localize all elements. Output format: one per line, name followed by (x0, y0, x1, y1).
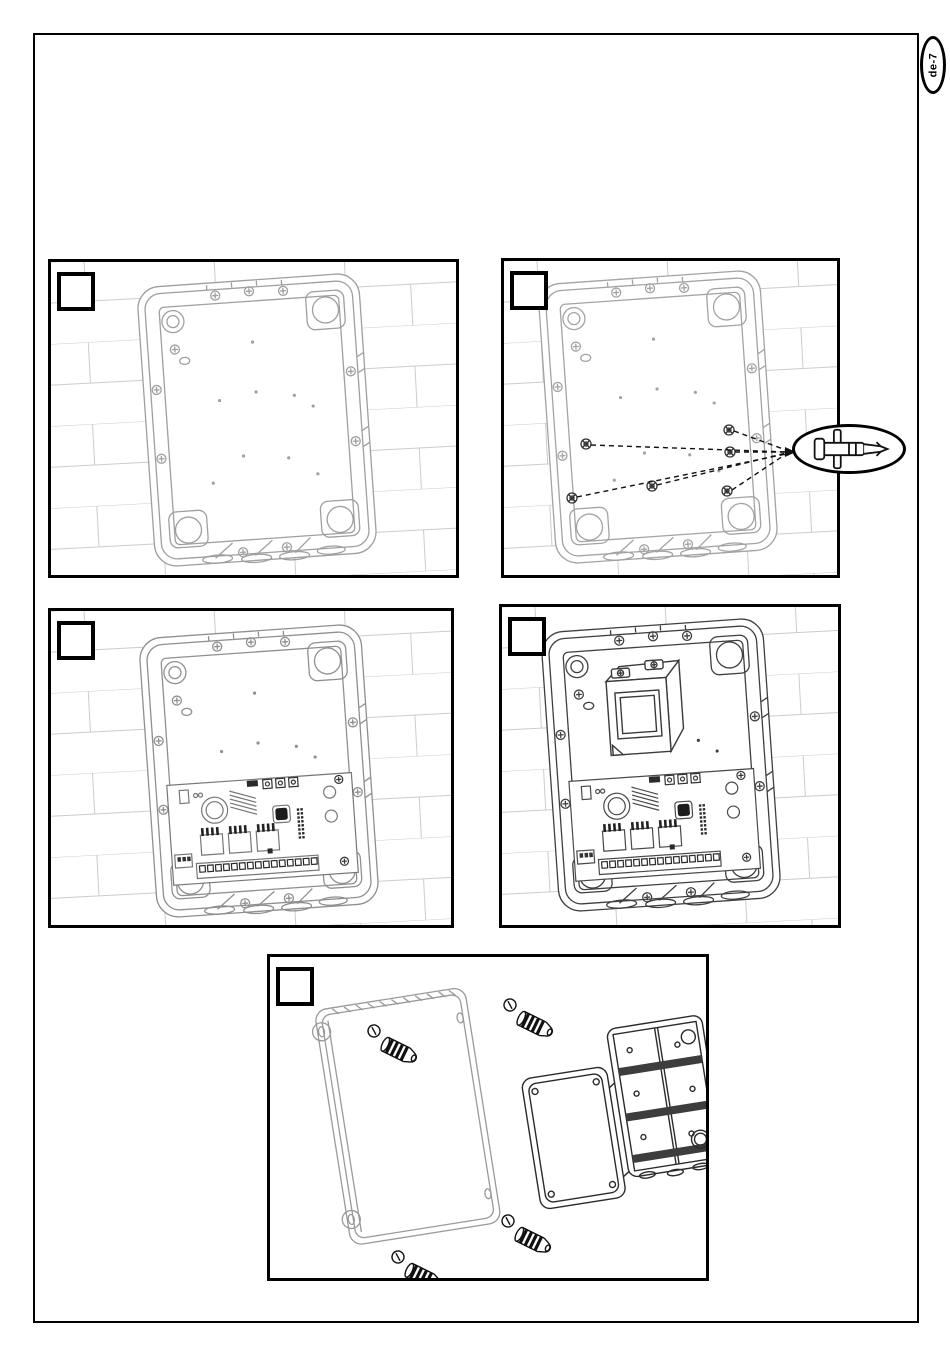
back-box-standoff-drawing (504, 261, 837, 575)
figure-panel-standoffs (501, 258, 840, 578)
page-number-tab: de-7 (920, 36, 946, 94)
figure-panel-cover (267, 954, 709, 1281)
back-box-on-wall-drawing (51, 262, 456, 575)
back-box-with-transformer-drawing (502, 607, 838, 925)
figure-panel-transformer (499, 604, 841, 928)
enclosure-cover (309, 987, 501, 1247)
figure-panel-board (48, 608, 454, 928)
step-number-box (57, 621, 95, 660)
step-number-box (510, 271, 548, 310)
manual-page: de-7 (0, 0, 950, 1360)
step-number-box (276, 967, 314, 1006)
step-number-box (57, 272, 95, 311)
step-number-box (508, 617, 546, 656)
pcb-standoff-icon (803, 427, 895, 471)
figure-panel-mount-box (48, 259, 459, 578)
page-number-label: de-7 (927, 53, 939, 78)
back-box-with-board-drawing (51, 611, 451, 925)
cover-and-junction-box-drawing (270, 957, 706, 1278)
junction-box (515, 1015, 706, 1210)
fastener-callout (792, 424, 906, 474)
